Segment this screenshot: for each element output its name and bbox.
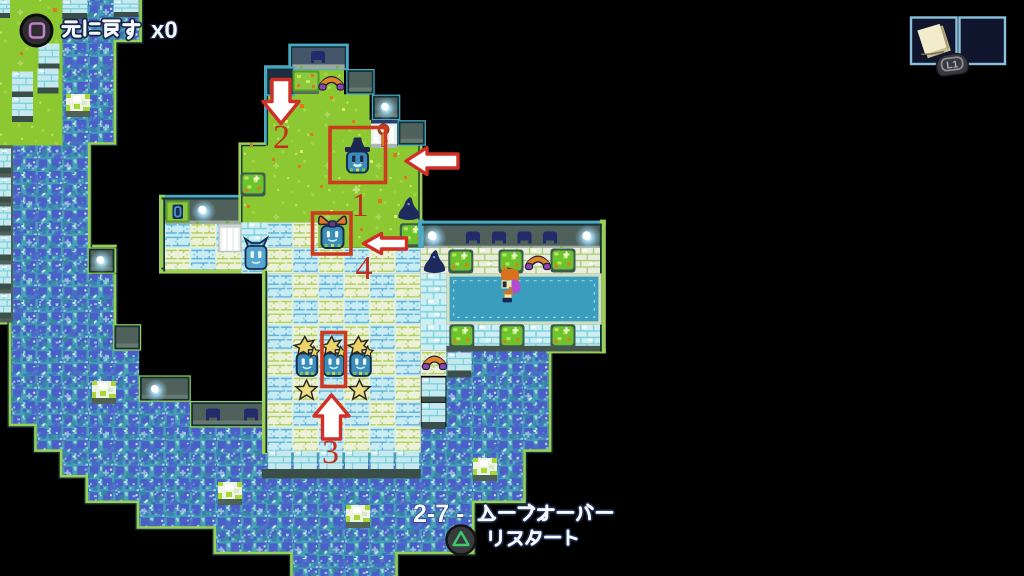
- svg-text:3: 3: [322, 434, 339, 471]
- svg-text:x0: x0: [151, 17, 178, 44]
- svg-text:L1: L1: [946, 59, 959, 71]
- svg-text:1: 1: [352, 187, 369, 224]
- svg-text:4: 4: [356, 250, 373, 287]
- svg-text:2: 2: [273, 119, 290, 156]
- svg-text:2-7 -: 2-7 -: [413, 500, 464, 528]
